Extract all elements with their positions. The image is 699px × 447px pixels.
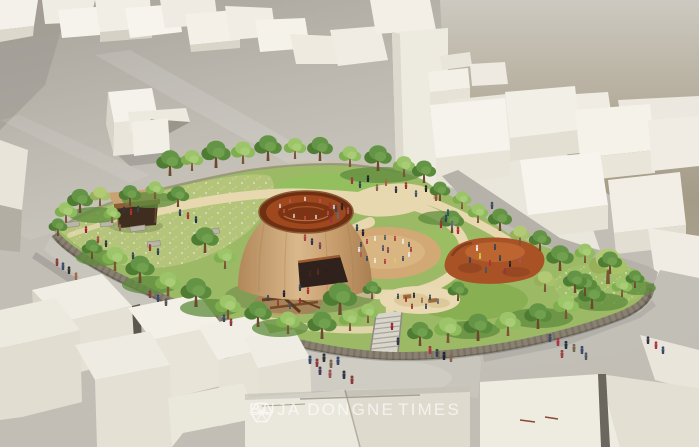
park-rendering-image: BUJA DONGNE TIMES [0, 0, 699, 447]
park-stairs [370, 311, 402, 354]
rendering-scene [0, 0, 699, 447]
